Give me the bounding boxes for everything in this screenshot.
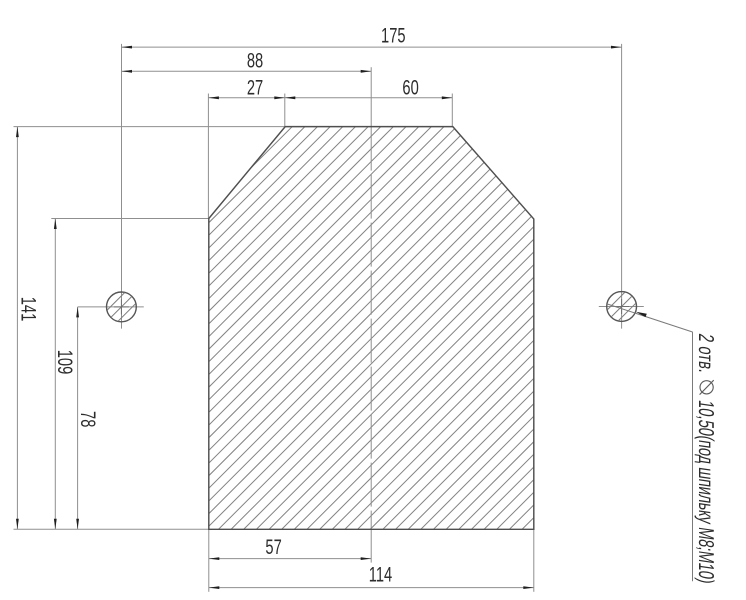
svg-text:78: 78 [76, 411, 99, 427]
svg-text:57: 57 [265, 535, 281, 558]
svg-text:60: 60 [402, 76, 418, 99]
svg-text:88: 88 [247, 49, 263, 72]
svg-text:10,50(под шпильку М8;М10): 10,50(под шпильку М8;М10) [694, 399, 718, 585]
svg-text:2 отв.: 2 отв. [694, 332, 718, 375]
svg-text:175: 175 [381, 24, 406, 47]
svg-text:114: 114 [369, 563, 392, 586]
svg-text:109: 109 [53, 350, 76, 375]
svg-text:27: 27 [247, 76, 263, 99]
svg-text:141: 141 [17, 297, 40, 322]
